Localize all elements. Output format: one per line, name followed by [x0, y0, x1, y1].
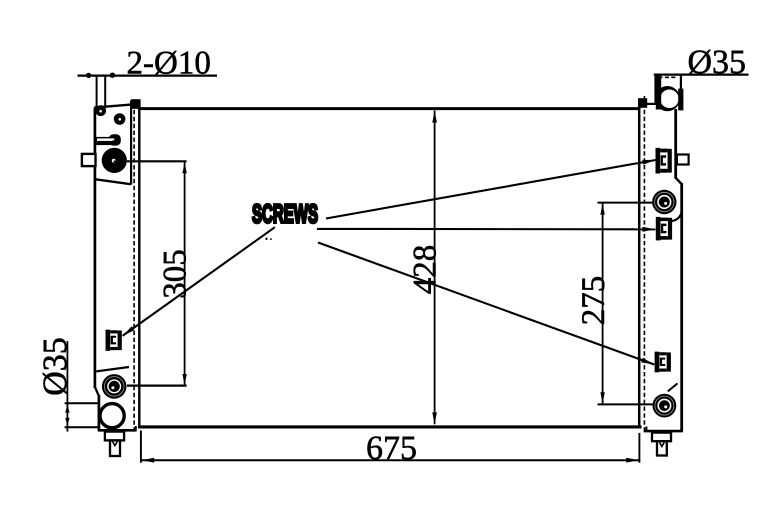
svg-text:275: 275 [576, 276, 612, 326]
svg-text:675: 675 [366, 430, 417, 467]
svg-text:428: 428 [407, 245, 443, 295]
svg-text:2-Ø10: 2-Ø10 [127, 46, 211, 82]
svg-text:SCREWS: SCREWS [252, 198, 318, 228]
svg-text:Ø35: Ø35 [688, 44, 747, 81]
svg-text:305: 305 [158, 249, 194, 299]
svg-text:Ø35: Ø35 [37, 337, 74, 396]
